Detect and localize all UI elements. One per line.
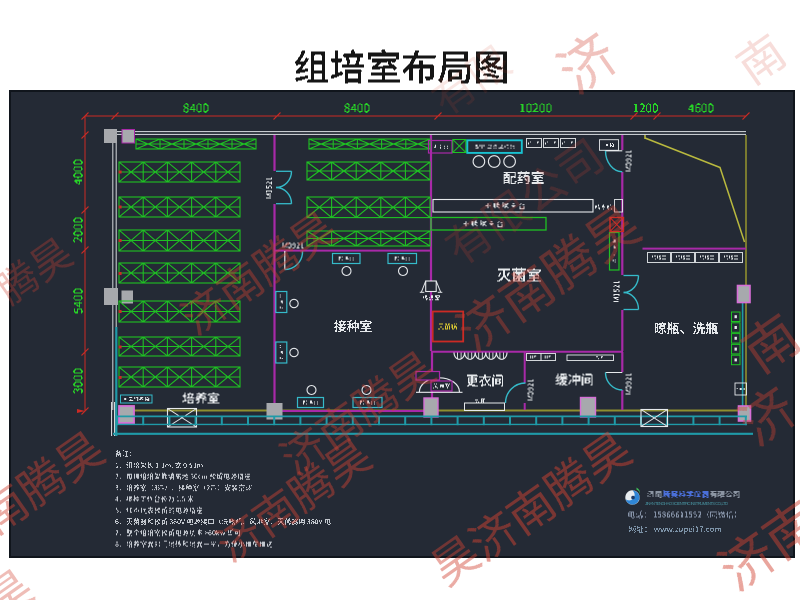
svg-text:JINAN TENGHAO SCIENTIFIC INSTR: JINAN TENGHAO SCIENTIFIC INSTRUMENTS CO.… — [645, 501, 728, 506]
